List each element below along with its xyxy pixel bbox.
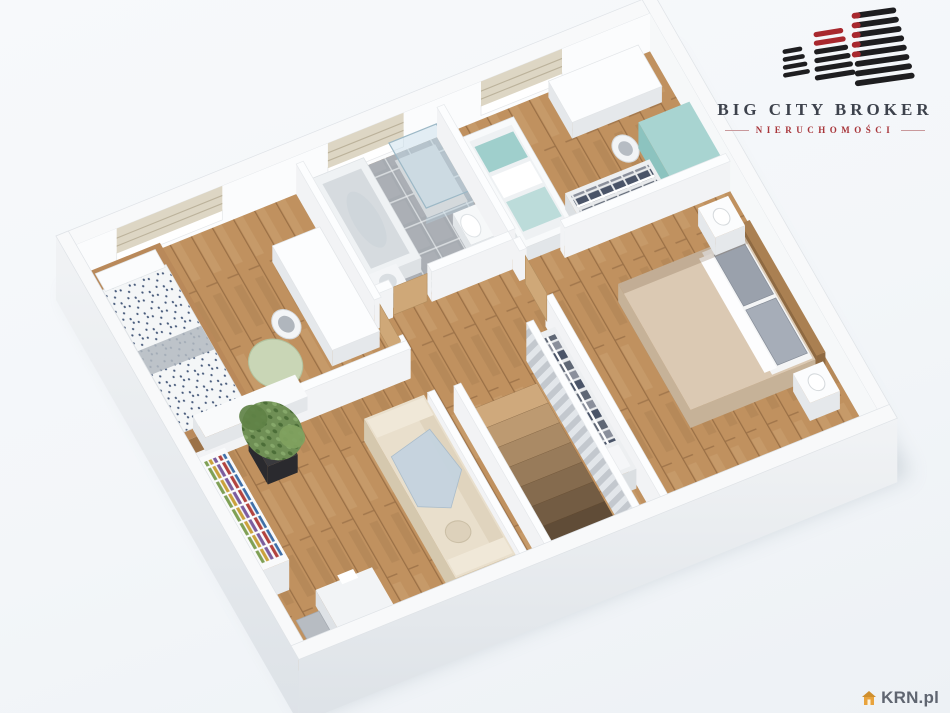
logo-bar — [814, 44, 849, 55]
logo-bar — [783, 69, 811, 78]
logo-tower — [808, 27, 856, 81]
logo-subtitle-row: NIERUCHOMOŚCI — [725, 125, 926, 135]
logo-bar — [813, 36, 846, 46]
logo-bar — [782, 61, 807, 70]
logo-buildings-icon — [765, 6, 915, 98]
agency-logo: BIG CITY BROKER NIERUCHOMOŚCI — [708, 6, 942, 135]
logo-title: BIG CITY BROKER — [717, 100, 932, 120]
logo-bar — [814, 53, 851, 64]
subtitle-rule-left — [725, 130, 749, 131]
logo-bar — [854, 26, 902, 38]
watermark-label: KRN.pl — [881, 688, 939, 708]
logo-bar — [813, 28, 843, 38]
real-estate-floorplan-image: BIG CITY BROKER NIERUCHOMOŚCI KRN.pl — [0, 0, 950, 713]
logo-tower — [779, 46, 811, 78]
logo-bar — [782, 54, 805, 62]
logo-bar — [854, 16, 899, 28]
logo-bar — [782, 46, 802, 54]
house-icon — [861, 690, 877, 706]
logo-bar — [854, 7, 896, 19]
watermark: KRN.pl — [861, 688, 939, 708]
logo-subtitle: NIERUCHOMOŚCI — [756, 125, 895, 135]
subtitle-rule-right — [901, 130, 925, 131]
